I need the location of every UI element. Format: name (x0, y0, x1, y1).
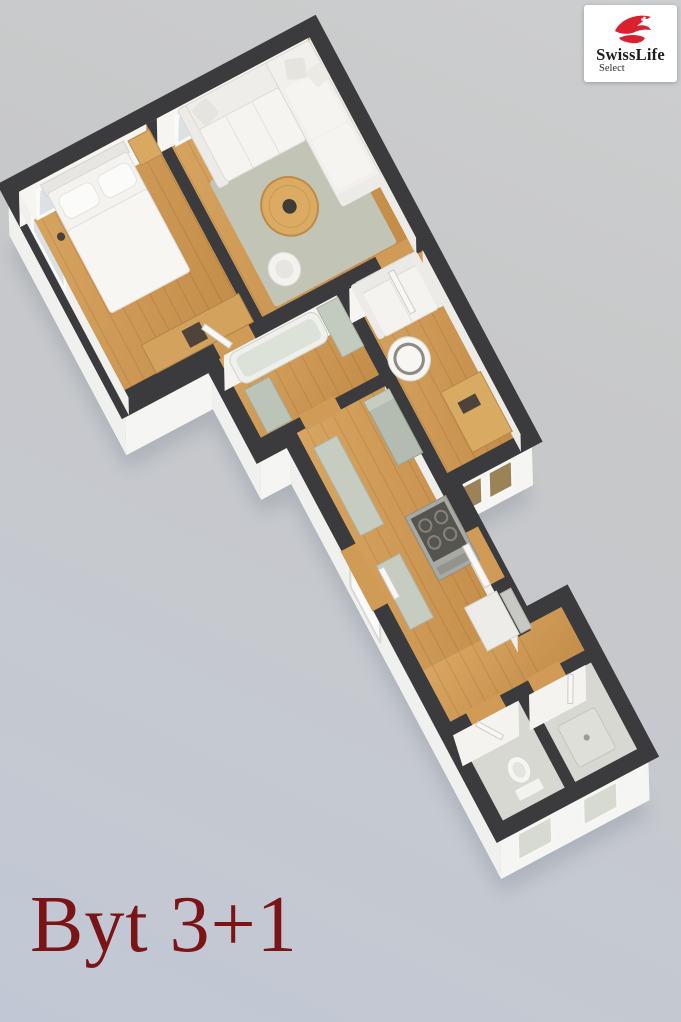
shower-door-leaf (568, 674, 573, 704)
caption-byt: Byt 3+1 (30, 880, 298, 971)
swisslife-logo: SwissLife Select (584, 5, 677, 82)
swisslife-logo-icon (608, 12, 654, 46)
throw-pillow (284, 57, 307, 80)
page: SwissLife Select Byt 3+1 (0, 0, 681, 1022)
logo-subbrand-text: Select (599, 63, 625, 75)
floorplan-3d-render (0, 0, 681, 1022)
logo-brand-text: SwissLife (596, 46, 665, 63)
